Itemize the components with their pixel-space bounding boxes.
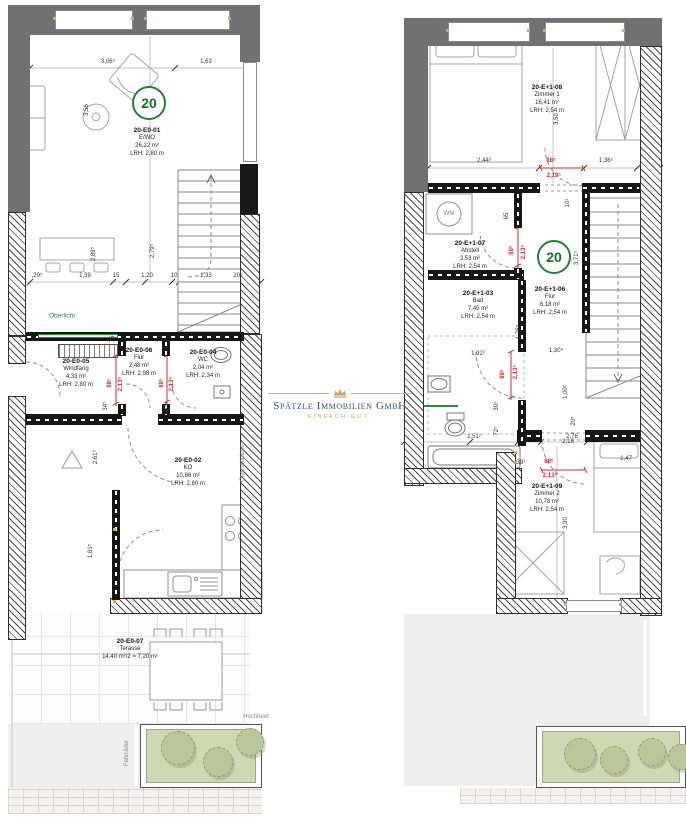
window [243, 62, 257, 162]
dimension-red: 2,13⁵ [118, 377, 124, 392]
room-label-line: Flur [533, 294, 567, 302]
dimension-red: 2,13⁵ [513, 365, 519, 380]
window-hardware [543, 29, 546, 32]
interior-wall [514, 268, 522, 280]
dimension: 2,89⁵ [91, 247, 97, 261]
dimension: ,20⁵ [32, 273, 43, 279]
hatched-wall [110, 598, 262, 614]
room-label-line: E/WO [130, 135, 164, 143]
dimension: 2,61⁵ [93, 450, 99, 464]
room-label-line: LRH: 2,34 m [186, 373, 220, 381]
dimension: 72⁵ [494, 426, 500, 435]
hatched-wall [496, 598, 568, 614]
oberlicht-glazing [38, 334, 118, 338]
dimension-red: 88⁵ [544, 459, 554, 465]
dimension: 1,47 [620, 456, 632, 462]
room-label-line: 20-E+1-06 [533, 286, 567, 294]
bush [638, 738, 666, 766]
dimension: 1,33 [200, 273, 212, 279]
window [566, 600, 622, 612]
dimension: 2,44³ [477, 158, 491, 164]
stairs-left [178, 170, 242, 332]
interior-wall [428, 183, 540, 193]
window-hardware [564, 603, 567, 606]
dimension-red: 88⁵ [546, 158, 556, 164]
room-label-20-E+1-08: 20-E+1-08Zimmer 116,41 m²LRH: 2,54 m [530, 84, 564, 116]
unit-badge-left: 20 [132, 86, 166, 120]
interior-wall [582, 183, 640, 193]
room-label-20-E0-05: 20-E0-05Windfang4,33 m²LRH: 2,80 m [59, 358, 93, 390]
dimension: 3,50 [554, 113, 560, 125]
dimension-red: 2,13⁵ [169, 377, 175, 392]
room-label-line: 20-E+1-08 [530, 84, 564, 92]
room-label-line: Zimmer 1 [530, 92, 564, 100]
dimension: 34⁵ [165, 401, 171, 410]
room-label-line: LRH: 2,80 m [171, 481, 205, 489]
room-label-20-E+1-07: 20-E+1-07Abstell3,53 m²LRH: 2,54 m [453, 240, 487, 272]
window-hardware [228, 17, 231, 20]
room-label-line: 20-E0-01 [130, 127, 164, 135]
wall [404, 18, 428, 192]
room-label-line: WC [186, 357, 220, 365]
room-label-20-E+1-03: 20-E+1-03Bad7,45 m²LRH: 2,54 m [461, 290, 495, 322]
annotation-Oberlicht: Oberlicht [49, 313, 75, 320]
window-hardware [53, 17, 56, 20]
brick-walkway-right [460, 788, 686, 804]
room-label-line: 26,22 m² [130, 143, 164, 151]
room-label-line: LRH: 2,54 m [453, 264, 487, 272]
room-label-line: LRH: 2,80 m [59, 382, 93, 390]
room-label-20-E+1-06: 20-E+1-06Flur6,18 m²LRH: 2,54 m [533, 286, 567, 318]
room-label-20-E0-06: 20-E0-06Flur2,48 m²LRH: 2,98 m [122, 347, 156, 379]
interior-wall [582, 193, 590, 333]
dimension: 75 [158, 336, 164, 343]
dimension: 20⁵ [233, 273, 242, 279]
room-label-20-E0-02: 20-E0-02KO10,86 m²LRH: 2,80 m [171, 457, 205, 489]
interior-wall [518, 400, 526, 446]
dimension: 1,76⁵ [516, 325, 522, 339]
ground-area-left [8, 724, 140, 788]
dimension: 20⁵ [571, 416, 577, 425]
annotation-Hochbeet: Hochbeet [243, 714, 269, 720]
dimension: 10¹ [565, 199, 571, 208]
annotation-Fahrräder: Fahrräder [124, 740, 130, 766]
room-label-line: 2,48 m² [122, 363, 156, 371]
room-label-line: 20-E0-06 [122, 347, 156, 355]
dimension: 15 [113, 273, 120, 279]
dimension: 1,81⁵ [88, 544, 94, 558]
window-hardware [131, 17, 134, 20]
hatched-wall [496, 452, 516, 610]
door-hardware [113, 528, 116, 531]
bush [600, 746, 628, 774]
company-name: Spätzle Immobilien GmbH [268, 400, 412, 412]
room-label-line: 20-E+1-07 [453, 240, 487, 248]
bush [203, 747, 233, 777]
dimension: 1,20 [141, 273, 153, 279]
logo-rule [268, 393, 329, 394]
dimension-red: 2,13⁵ [547, 173, 562, 179]
room-label-line: 2,04 m² [186, 365, 220, 373]
window [545, 22, 625, 42]
room-label-line: 20-E0-07 [102, 638, 158, 646]
dimension-red: 88⁵ [500, 369, 506, 379]
room-label-line: 7,45 m² [461, 306, 495, 314]
dimension-red: 88⁵ [107, 378, 113, 388]
window [448, 22, 530, 42]
room-label-line: 20-E0-04 [186, 349, 220, 357]
dimension: 1,51² [467, 434, 481, 440]
room-label-line: 20-E0-05 [59, 358, 93, 366]
dimension: 3,56 [84, 104, 90, 116]
dimension: 3,90 [563, 517, 569, 529]
room-label-line: 4,33 m² [59, 374, 93, 382]
dimension: 39⁵ [494, 401, 500, 410]
room-label-20-E0-07: 20-E0-07Terasse14,40 m²/2 = 7,20 m² [102, 638, 158, 662]
window-hardware [144, 17, 147, 20]
window [55, 10, 133, 30]
room-label-line: Bad [461, 298, 495, 306]
room-label-line: LRH: 2,54 m [530, 507, 564, 515]
dimension: 65 [504, 213, 510, 220]
window-hardware [619, 603, 622, 606]
bush [161, 731, 195, 765]
interior-wall [514, 193, 522, 228]
room-label-line: 20-E+1-09 [530, 483, 564, 491]
interior-wall [518, 280, 526, 352]
hatched-wall [640, 46, 662, 616]
room-label-line: LRH: 2,54 m [533, 310, 567, 318]
room-label-20-E0-04: 20-E0-04WC2,04 m²LRH: 2,34 m [186, 349, 220, 381]
bush [564, 738, 596, 770]
wall [240, 5, 260, 62]
interior-wall [158, 414, 244, 425]
room-label-line: 10,86 m² [171, 473, 205, 481]
dimension: 10 [171, 273, 178, 279]
interior-wall [118, 404, 126, 416]
room-label-line: KO [171, 465, 205, 473]
logo-rule-row [268, 388, 412, 398]
window [146, 10, 230, 30]
room-label-line: 20-E0-02 [171, 457, 205, 465]
window-hardware [446, 29, 449, 32]
wall [8, 5, 30, 212]
faucet [514, 451, 517, 454]
crown-icon [333, 388, 347, 398]
room-label-line: Flur [122, 355, 156, 363]
hatched-wall [8, 396, 26, 640]
room-label-line: 16,41 m² [530, 100, 564, 108]
room-label-line: 6,18 m² [533, 302, 567, 310]
room-label-line: Abstell [453, 248, 487, 256]
dimension: 1,39 [79, 273, 91, 279]
dimension: 1,00¹ [563, 385, 569, 399]
room-label-line: 3,53 m² [453, 256, 487, 264]
brick-walkway-left [8, 788, 262, 814]
room-label-line: Windfang [59, 366, 93, 374]
dimension-red: 2,13⁵ [521, 245, 527, 260]
bush [236, 728, 264, 756]
window-hardware [622, 29, 625, 32]
dimension: 34⁵ [103, 401, 109, 410]
room-label-20-E+1-09: 20-E+1-09Zimmer 210,78 m²LRH: 2,54 m [530, 483, 564, 515]
annotation-Oberschränke: Oberschränke [240, 444, 246, 482]
room-label-line: Zimmer 2 [530, 491, 564, 499]
room-label-line: 20-E+1-03 [461, 290, 495, 298]
floorplan-sheet: 20 20 WM Spätzle Immobilien GmbH EINFACH… [0, 0, 686, 821]
dimension: 3,71⁵ [574, 251, 580, 265]
dimension-red: 88⁵ [159, 378, 165, 388]
hatched-wall [8, 336, 26, 364]
interior-wall [112, 490, 120, 600]
hatched-wall [240, 214, 260, 334]
company-logo: Spätzle Immobilien GmbH EINFACH GUT. [268, 388, 412, 420]
door-mat [58, 344, 118, 358]
hatched-wall [404, 192, 424, 486]
hatched-wall [620, 598, 662, 614]
window-hardware [527, 29, 530, 32]
company-tagline: EINFACH GUT. [268, 414, 412, 420]
room-label-line: LRH: 2,54 m [461, 314, 495, 322]
room-label-line: LRH: 2,98 m [122, 371, 156, 379]
dimension: 1,36⁵ [599, 158, 613, 164]
terrace-paving [12, 612, 250, 724]
dimension: 2,16 [562, 439, 574, 445]
door-hardware [113, 600, 116, 603]
room-label-line: 10,78 m² [530, 499, 564, 507]
dimension: 3,06⁵ [101, 59, 115, 65]
interior-wall [26, 414, 122, 425]
chimney-block [240, 164, 258, 214]
dimension: 2,79⁵ [150, 244, 156, 258]
dimension-red: 2,13⁵ [543, 473, 558, 479]
dimension: ,39¹ [515, 460, 525, 466]
dimension: 1,92² [471, 351, 485, 357]
room-label-line: Terasse [102, 646, 158, 654]
dimension: 1,63 [200, 59, 212, 65]
dimension: 75 [110, 336, 116, 343]
interior-wall [162, 341, 170, 356]
room-label-20-E0-01: 20-E0-01E/WO26,22 m²LRH: 2,80 m [130, 127, 164, 159]
washing-machine-label: WM [444, 211, 455, 217]
dimension-red: 88⁵ [509, 245, 515, 255]
logo-rule [351, 393, 412, 394]
room-label-line: LRH: 2,80 m [130, 151, 164, 159]
interior-wall [585, 430, 640, 442]
hatched-wall [8, 212, 26, 336]
dimension: 1,30⁵ [549, 348, 563, 354]
room-label-line: 14,40 m²/2 = 7,20 m² [102, 654, 158, 662]
unit-badge-right: 20 [537, 240, 571, 274]
